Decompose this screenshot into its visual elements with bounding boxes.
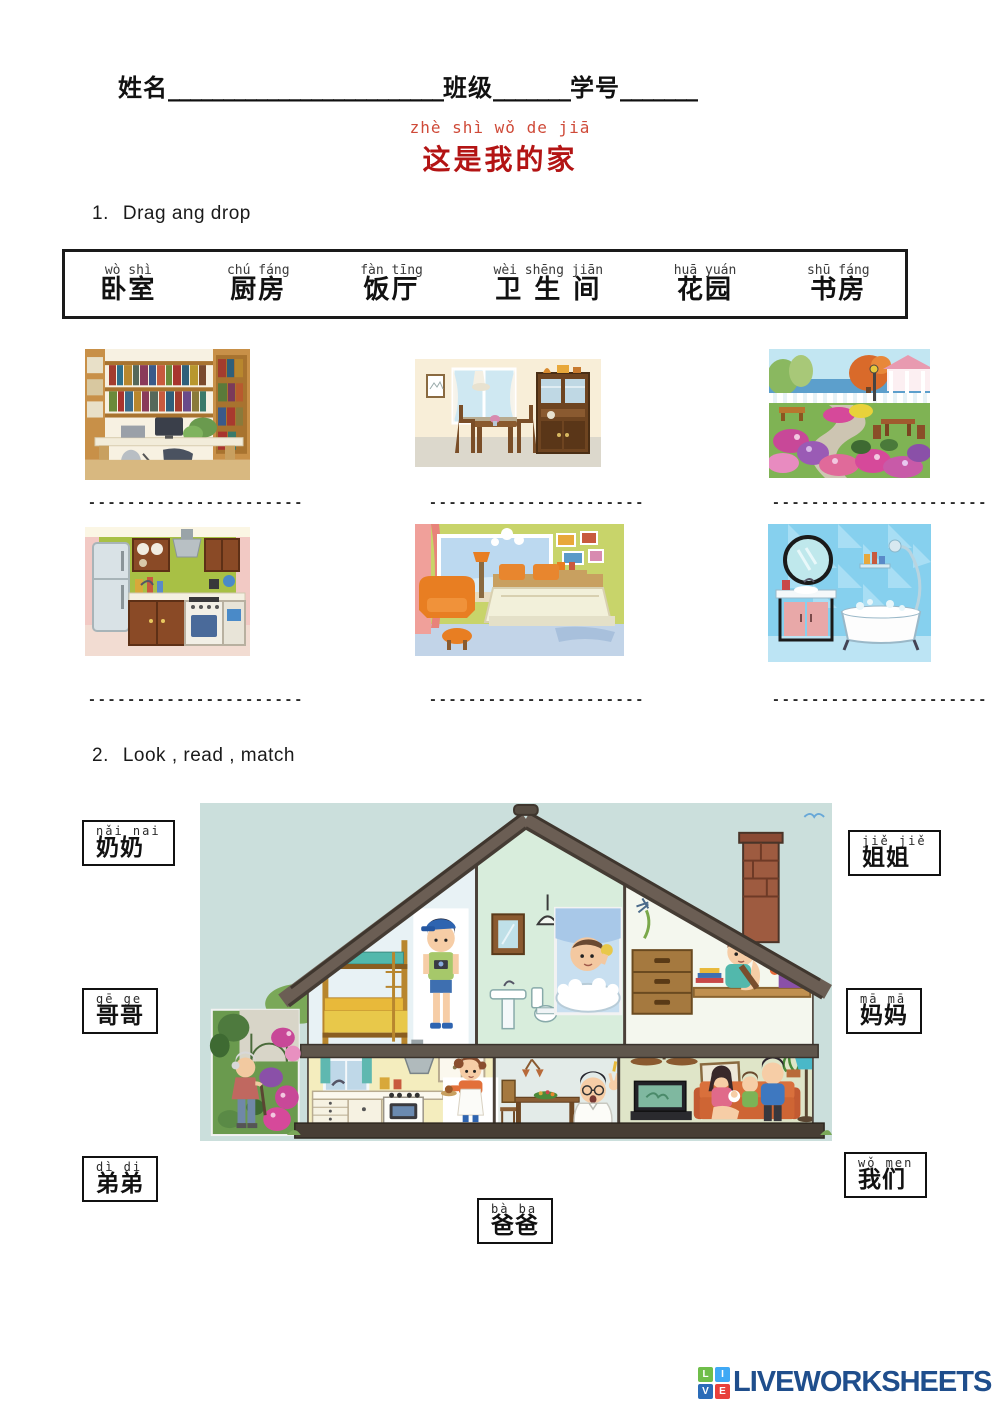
floor-divider (301, 1045, 818, 1058)
section1-number: 1. (92, 203, 109, 224)
boy-figure[interactable] (413, 908, 468, 1044)
label-gege[interactable]: gē ge哥哥 (82, 988, 158, 1034)
logo-grid-icon: L I V E (698, 1367, 730, 1399)
name-blank[interactable]: _________________________ (168, 74, 443, 102)
label-women[interactable]: wǒ men我们 (844, 1152, 927, 1198)
tv (631, 1081, 692, 1120)
word-fanting[interactable]: fàn tīng饭厅 (360, 264, 423, 305)
label-nainai[interactable]: nǎi nai奶奶 (82, 820, 175, 866)
worksheet-page: 姓名_________________________班级_______学号__… (0, 0, 1000, 1413)
label-mama[interactable]: mā mā妈妈 (846, 988, 922, 1034)
answer-slot-4[interactable]: ---------------------- (88, 693, 304, 708)
word-woshi[interactable]: wò shì卧室 (100, 264, 156, 305)
class-label: 班级 (443, 74, 493, 102)
bathroom-image (768, 524, 931, 662)
section1-heading: 1.Drag ang drop (92, 203, 251, 225)
word-weishengjian[interactable]: wèi shēng jiān卫 生 间 (494, 264, 604, 305)
word-huayuan[interactable]: huā yuán花园 (674, 264, 737, 305)
answer-slot-1[interactable]: ---------------------- (88, 496, 304, 511)
section2-number: 2. (92, 745, 109, 766)
garden-image (769, 349, 930, 478)
bathing-kid-picture[interactable] (556, 908, 621, 1013)
id-blank[interactable]: _______ (620, 74, 697, 102)
liveworksheets-logo[interactable]: L I V E LIVEWORKSHEETS (698, 1366, 991, 1399)
answer-slot-5[interactable]: ---------------------- (429, 693, 645, 708)
word-chufang[interactable]: chú fáng厨房 (227, 264, 290, 305)
section2-heading: 2.Look , read , match (92, 745, 295, 767)
id-label: 学号 (570, 74, 620, 102)
house-illustration (200, 803, 832, 1141)
brand-text: LIVEWORKSHEETS (733, 1366, 991, 1399)
study-room-image (85, 349, 250, 480)
chimney (739, 833, 782, 942)
class-blank[interactable]: _______ (493, 74, 570, 102)
foundation (295, 1123, 824, 1138)
kitchen-image (85, 527, 250, 656)
garden-photo (210, 1010, 301, 1135)
page-title: 这是我的家 (0, 138, 1000, 178)
label-jiejie[interactable]: jiě jiě姐姐 (848, 830, 941, 876)
word-bank: wò shì卧室 chú fáng厨房 fàn tīng饭厅 wèi shēng… (62, 249, 908, 319)
label-baba[interactable]: bà ba爸爸 (477, 1198, 553, 1244)
name-label: 姓名 (118, 74, 168, 102)
label-didi[interactable]: dì di弟弟 (82, 1156, 158, 1202)
header-fill-line: 姓名_________________________班级_______学号__… (118, 68, 888, 103)
bedroom-image (415, 524, 624, 656)
answer-slot-6[interactable]: ---------------------- (772, 693, 988, 708)
answer-slot-3[interactable]: ---------------------- (772, 496, 988, 511)
title-pinyin: zhè shì wǒ de jiā (0, 118, 1000, 137)
dining-room-image (415, 359, 601, 467)
word-shufang[interactable]: shū fáng书房 (807, 264, 870, 305)
answer-slot-2[interactable]: ---------------------- (429, 496, 645, 511)
